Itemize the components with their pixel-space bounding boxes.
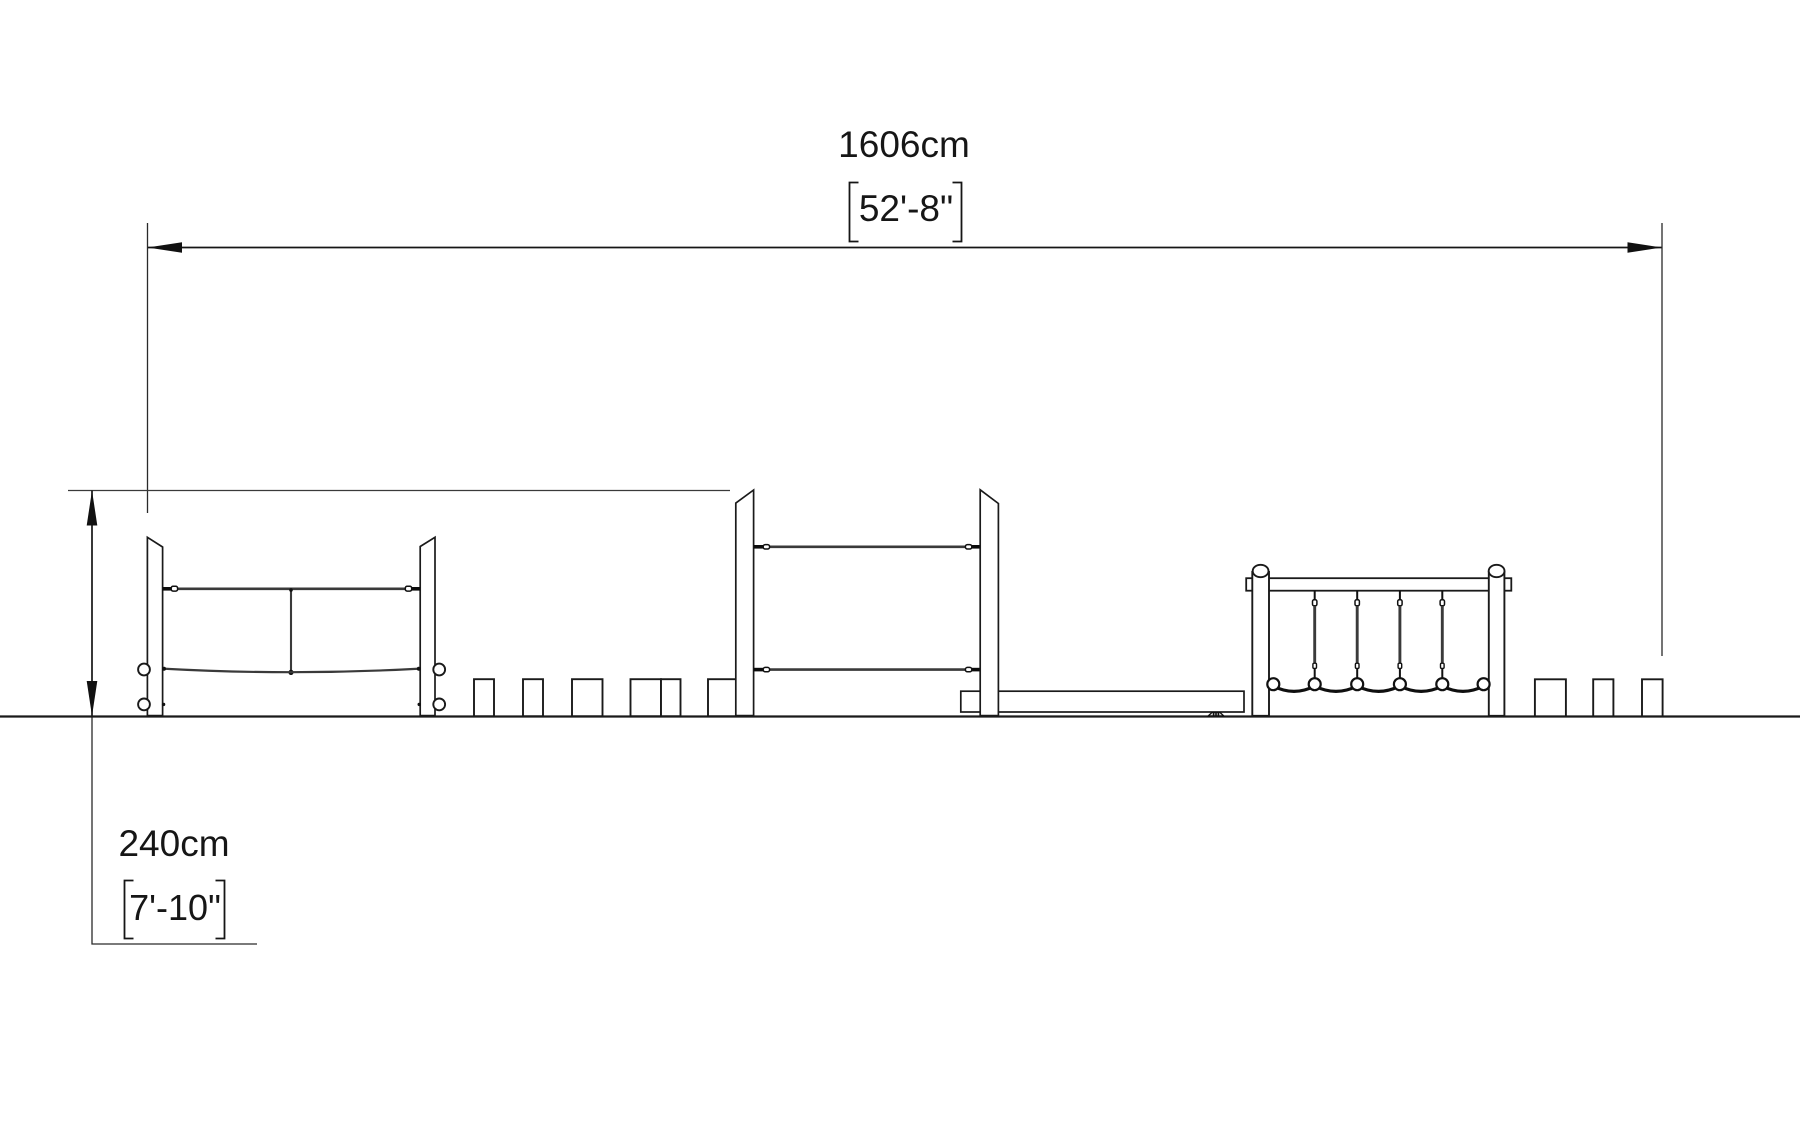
svg-text:7'-10": 7'-10": [129, 887, 221, 928]
svg-text:52'-8": 52'-8": [859, 188, 953, 229]
svg-text:1606cm: 1606cm: [838, 124, 970, 165]
svg-text:240cm: 240cm: [118, 823, 229, 864]
